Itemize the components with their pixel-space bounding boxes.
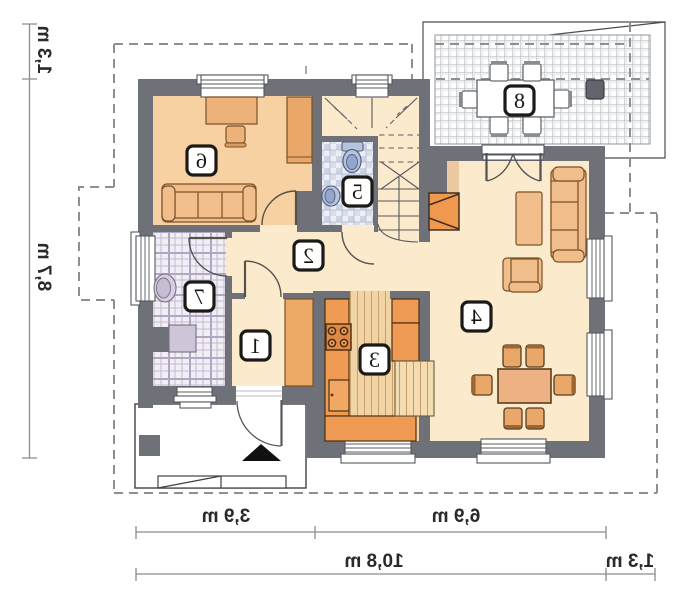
svg-text:4: 4 <box>471 304 482 329</box>
svg-text:6,9 m: 6,9 m <box>432 506 481 527</box>
svg-text:10,8 m: 10,8 m <box>344 551 403 572</box>
svg-text:1: 1 <box>250 333 261 358</box>
svg-text:5: 5 <box>352 179 363 204</box>
svg-text:1,3 m: 1,3 m <box>33 26 54 75</box>
svg-text:3: 3 <box>369 347 380 372</box>
svg-text:6: 6 <box>196 148 207 173</box>
svg-text:3,9 m: 3,9 m <box>202 506 251 527</box>
svg-text:8: 8 <box>514 88 525 113</box>
svg-text:8,7 m: 8,7 m <box>33 243 54 292</box>
svg-text:1,3 m: 1,3 m <box>606 551 655 572</box>
svg-text:7: 7 <box>194 284 205 309</box>
svg-text:2: 2 <box>303 243 314 268</box>
